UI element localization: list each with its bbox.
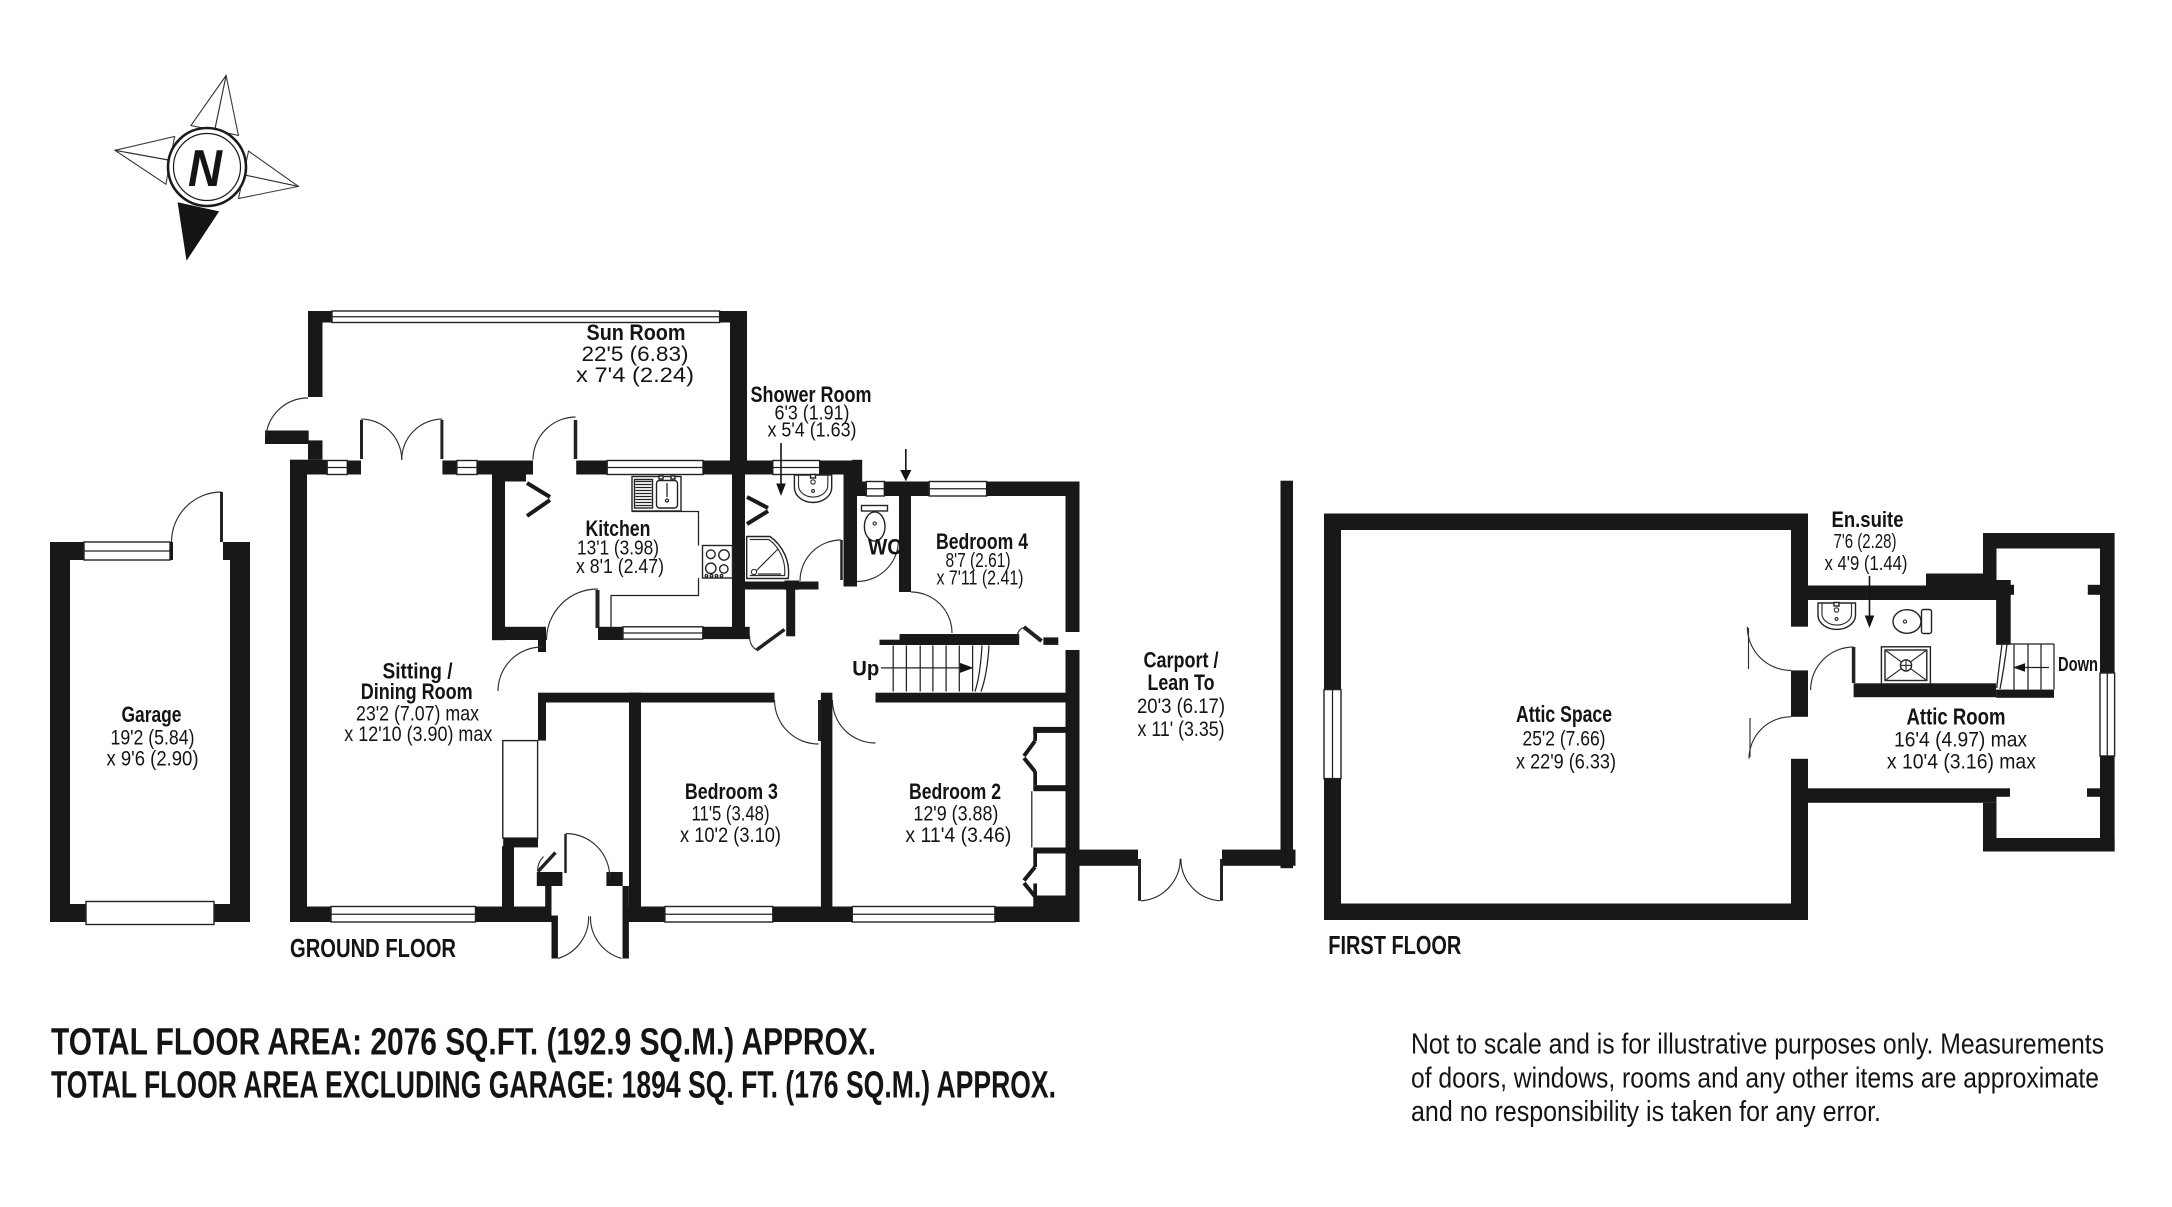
svg-text:TOTAL FLOOR AREA EXCLUDING GAR: TOTAL FLOOR AREA EXCLUDING GARAGE: 1894 … <box>51 1065 1056 1107</box>
svg-text:x 10'2 (3.10): x 10'2 (3.10) <box>680 824 781 847</box>
svg-text:7'6 (2.28): 7'6 (2.28) <box>1834 531 1897 553</box>
svg-text:and no responsibility is taken: and no responsibility is taken for any e… <box>1411 1096 1881 1128</box>
svg-text:of doors, windows, rooms and a: of doors, windows, rooms and any other i… <box>1411 1063 2099 1095</box>
svg-text:WC: WC <box>868 535 902 560</box>
svg-text:16'4 (4.97) max: 16'4 (4.97) max <box>1894 729 2027 752</box>
svg-text:Garage: Garage <box>122 702 182 727</box>
svg-text:x 10'4 (3.16) max: x 10'4 (3.16) max <box>1887 751 2036 774</box>
svg-text:x 4'9 (1.44): x 4'9 (1.44) <box>1825 553 1908 575</box>
svg-text:Carport /: Carport / <box>1144 648 1219 673</box>
svg-text:20'3 (6.17): 20'3 (6.17) <box>1137 695 1225 718</box>
svg-text:x 22'9 (6.33): x 22'9 (6.33) <box>1516 751 1616 774</box>
svg-text:12'9 (3.88): 12'9 (3.88) <box>913 803 998 826</box>
svg-text:Lean To: Lean To <box>1148 670 1215 695</box>
svg-text:x 12'10 (3.90) max: x 12'10 (3.90) max <box>344 723 492 746</box>
svg-text:x 11'4 (3.46): x 11'4 (3.46) <box>905 824 1011 847</box>
svg-text:11'5 (3.48): 11'5 (3.48) <box>692 803 770 826</box>
svg-text:x 5'4 (1.63): x 5'4 (1.63) <box>768 420 857 442</box>
svg-text:Dining Room: Dining Room <box>361 679 473 704</box>
svg-text:Attic Room: Attic Room <box>1907 704 2006 730</box>
svg-text:N: N <box>188 140 223 198</box>
svg-text:x 9'6 (2.90): x 9'6 (2.90) <box>107 748 199 771</box>
svg-text:TOTAL FLOOR AREA: 2076 SQ.FT.: TOTAL FLOOR AREA: 2076 SQ.FT. (192.9 SQ.… <box>51 1022 876 1064</box>
svg-text:Bedroom 2: Bedroom 2 <box>909 779 1001 804</box>
svg-text:En.suite: En.suite <box>1832 507 1904 532</box>
svg-text:x 8'1 (2.47): x 8'1 (2.47) <box>576 556 664 578</box>
svg-text:Down: Down <box>2058 654 2098 676</box>
svg-text:Not to scale and is for illust: Not to scale and is for illustrative pur… <box>1411 1029 2104 1061</box>
svg-text:Sun Room: Sun Room <box>587 320 686 345</box>
svg-text:22'5 (6.83): 22'5 (6.83) <box>582 343 689 366</box>
svg-text:Up: Up <box>852 658 879 681</box>
svg-text:GROUND FLOOR: GROUND FLOOR <box>290 933 456 963</box>
svg-text:19'2 (5.84): 19'2 (5.84) <box>111 727 195 750</box>
svg-text:FIRST FLOOR: FIRST FLOOR <box>1328 930 1461 960</box>
svg-text:25'2 (7.66): 25'2 (7.66) <box>1523 728 1606 751</box>
svg-text:Bedroom 3: Bedroom 3 <box>685 779 778 804</box>
svg-text:x 11' (3.35): x 11' (3.35) <box>1138 718 1225 741</box>
svg-text:x 7'4 (2.24): x 7'4 (2.24) <box>576 364 694 387</box>
svg-text:x 7'11 (2.41): x 7'11 (2.41) <box>937 568 1024 590</box>
svg-text:Attic Space: Attic Space <box>1516 701 1612 727</box>
